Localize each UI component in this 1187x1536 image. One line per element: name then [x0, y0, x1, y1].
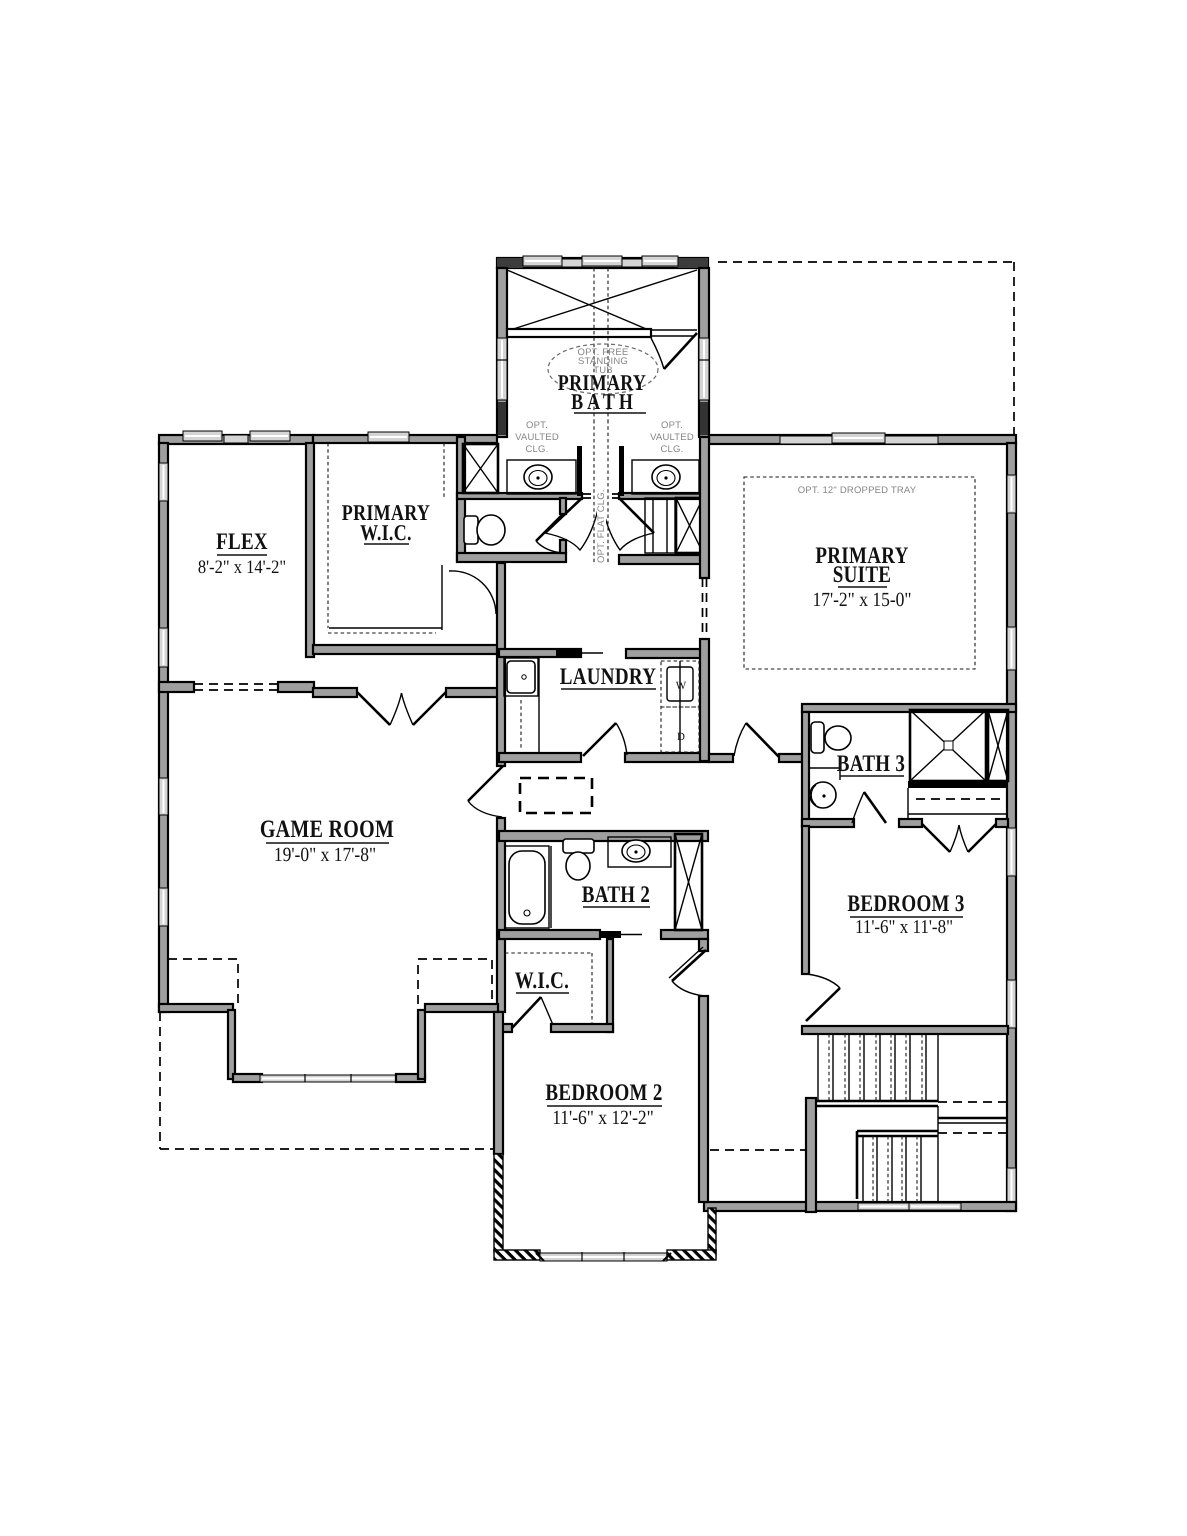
svg-text:17'-2" x 15-0": 17'-2" x 15-0": [812, 588, 911, 611]
svg-text:OPT.: OPT.: [661, 420, 683, 431]
svg-text:LAUNDRY: LAUNDRY: [560, 664, 656, 690]
svg-text:BEDROOM 2: BEDROOM 2: [545, 1080, 662, 1106]
svg-text:W: W: [676, 680, 687, 692]
svg-text:W.I.C.: W.I.C.: [360, 520, 412, 545]
svg-text:CLG.: CLG.: [526, 444, 549, 455]
svg-text:OPT.: OPT.: [526, 420, 548, 431]
svg-text:VAULTED: VAULTED: [650, 432, 694, 443]
svg-text:OPT. FLAT CLG.: OPT. FLAT CLG.: [596, 489, 607, 563]
svg-text:D: D: [677, 731, 685, 743]
svg-text:GAME ROOM: GAME ROOM: [260, 816, 394, 844]
svg-text:BATH 2: BATH 2: [582, 882, 651, 908]
svg-text:SUITE: SUITE: [833, 562, 892, 588]
svg-text:11'-6" x 12'-2": 11'-6" x 12'-2": [552, 1106, 654, 1129]
svg-text:BATH: BATH: [571, 389, 637, 414]
svg-text:W.I.C.: W.I.C.: [515, 968, 569, 994]
svg-text:FLEX: FLEX: [216, 529, 268, 555]
svg-text:8'-2" x 14'-2": 8'-2" x 14'-2": [198, 556, 286, 578]
svg-text:19'-0" x 17'-8": 19'-0" x 17'-8": [274, 843, 376, 866]
svg-text:VAULTED: VAULTED: [515, 432, 559, 443]
svg-text:OPT. 12" DROPPED TRAY: OPT. 12" DROPPED TRAY: [798, 485, 917, 496]
svg-text:CLG.: CLG.: [661, 444, 684, 455]
svg-text:BATH 3: BATH 3: [837, 751, 906, 777]
svg-text:11'-6" x 11'-8": 11'-6" x 11'-8": [855, 916, 953, 938]
svg-text:BEDROOM 3: BEDROOM 3: [847, 891, 964, 917]
